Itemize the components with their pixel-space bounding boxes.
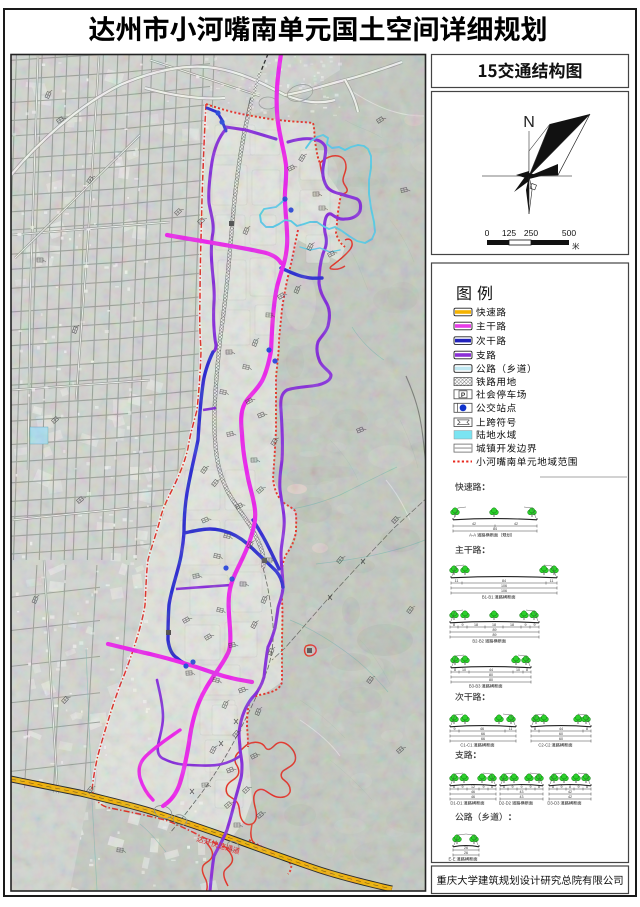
svg-text:9: 9 — [483, 785, 485, 789]
svg-text:26: 26 — [464, 851, 468, 855]
svg-text:66: 66 — [481, 732, 485, 736]
svg-text:500: 500 — [562, 228, 576, 238]
svg-text:9: 9 — [561, 785, 563, 789]
svg-text:B2-B2: B2-B2 — [472, 639, 484, 644]
svg-text:8: 8 — [453, 785, 455, 789]
svg-text:46: 46 — [471, 795, 475, 799]
svg-text:42: 42 — [568, 790, 572, 794]
svg-text:42: 42 — [514, 522, 518, 526]
svg-text:26: 26 — [464, 846, 468, 850]
svg-text:9: 9 — [462, 623, 464, 627]
svg-text:18: 18 — [474, 623, 478, 627]
svg-text:106: 106 — [501, 584, 507, 588]
svg-text:42: 42 — [472, 522, 476, 526]
svg-text:8: 8 — [586, 727, 588, 731]
svg-text:9: 9 — [534, 623, 536, 627]
svg-text:18: 18 — [492, 623, 496, 627]
svg-text:84: 84 — [502, 579, 506, 583]
svg-text:B3-B3: B3-B3 — [469, 684, 481, 689]
svg-text:43: 43 — [520, 795, 524, 799]
svg-text:80: 80 — [489, 678, 493, 682]
svg-text:8: 8 — [538, 785, 540, 789]
svg-text:46: 46 — [480, 727, 484, 731]
svg-text:9: 9 — [521, 785, 523, 789]
svg-text:8: 8 — [526, 668, 528, 672]
svg-text:60: 60 — [559, 732, 563, 736]
svg-text:46: 46 — [471, 790, 475, 794]
svg-text:9: 9 — [512, 785, 514, 789]
svg-text:N: N — [523, 114, 535, 131]
svg-text:9: 9 — [462, 785, 464, 789]
svg-text:44: 44 — [559, 727, 563, 731]
svg-text:8: 8 — [534, 727, 536, 731]
svg-text:8: 8 — [503, 785, 505, 789]
svg-text:125: 125 — [502, 228, 516, 238]
svg-text:89: 89 — [493, 633, 497, 637]
svg-text:10: 10 — [516, 668, 520, 672]
svg-text:9: 9 — [578, 785, 580, 789]
svg-text:9: 9 — [454, 727, 456, 731]
svg-text:106: 106 — [501, 589, 507, 593]
svg-text:18: 18 — [510, 623, 514, 627]
svg-text:11: 11 — [550, 579, 554, 583]
svg-text:43: 43 — [520, 790, 524, 794]
svg-text:8: 8 — [454, 668, 456, 672]
svg-text:11: 11 — [455, 579, 459, 583]
svg-text:C1-C1: C1-C1 — [460, 743, 473, 748]
svg-text:8: 8 — [491, 785, 493, 789]
svg-text:9: 9 — [530, 785, 532, 789]
svg-text:66: 66 — [481, 737, 485, 741]
svg-text:0: 0 — [485, 228, 490, 238]
svg-text:8: 8 — [552, 785, 554, 789]
svg-text:60: 60 — [559, 737, 563, 741]
svg-text:D3-D3: D3-D3 — [547, 801, 560, 806]
svg-text:8: 8 — [586, 785, 588, 789]
svg-text:84: 84 — [493, 527, 497, 531]
svg-text:8: 8 — [453, 623, 455, 627]
svg-text:89: 89 — [493, 628, 497, 632]
svg-text:A-A: A-A — [469, 533, 476, 538]
svg-text:11: 11 — [509, 727, 513, 731]
svg-text:B1-B1: B1-B1 — [482, 595, 494, 600]
svg-text:12: 12 — [471, 785, 475, 789]
svg-text:P: P — [461, 392, 466, 399]
svg-text:D1-D1: D1-D1 — [450, 801, 463, 806]
svg-text:D2-D2: D2-D2 — [499, 801, 512, 806]
svg-text:42: 42 — [568, 795, 572, 799]
svg-text:E-E: E-E — [449, 857, 456, 862]
svg-text:10: 10 — [462, 668, 466, 672]
svg-text:250: 250 — [524, 228, 538, 238]
svg-text:44: 44 — [489, 668, 493, 672]
svg-text:80: 80 — [489, 673, 493, 677]
svg-text:9: 9 — [525, 623, 527, 627]
svg-text:8: 8 — [569, 785, 571, 789]
svg-text:C2-C2: C2-C2 — [538, 743, 551, 748]
